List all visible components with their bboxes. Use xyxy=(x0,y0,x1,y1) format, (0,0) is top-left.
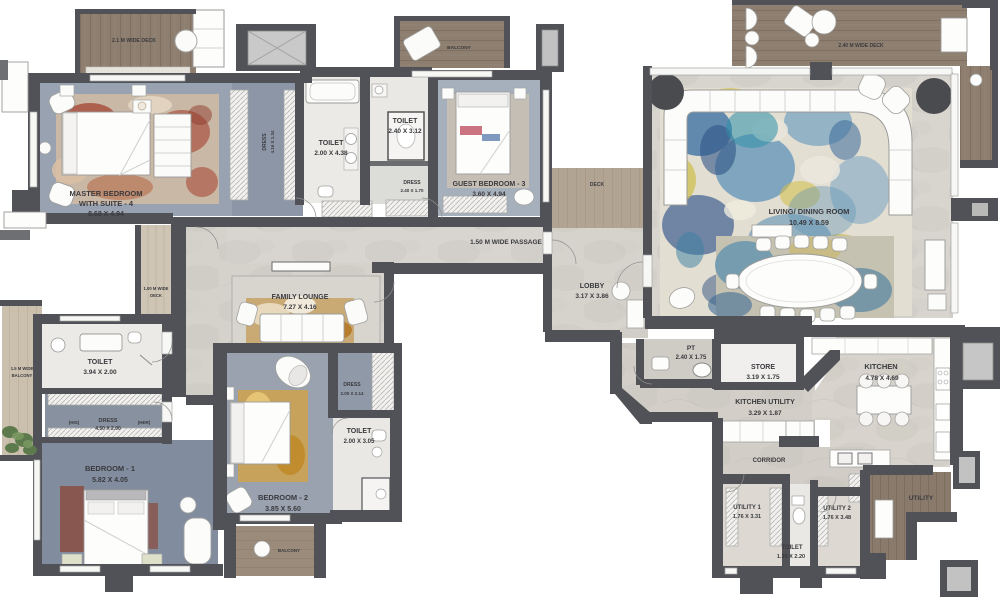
svg-text:3.94 X 2.00: 3.94 X 2.00 xyxy=(83,369,117,376)
svg-text:1.30 X 2.20: 1.30 X 2.20 xyxy=(777,554,805,560)
svg-text:2.40 M WIDE DECK: 2.40 M WIDE DECK xyxy=(838,43,884,49)
svg-text:UTILITY: UTILITY xyxy=(909,495,934,502)
svg-text:TOILET: TOILET xyxy=(393,118,418,125)
svg-text:2.40 X 1.75: 2.40 X 1.75 xyxy=(676,355,707,361)
svg-text:DECK: DECK xyxy=(590,182,605,188)
svg-text:TOILET: TOILET xyxy=(347,428,372,435)
svg-text:10.49 X 8.59: 10.49 X 8.59 xyxy=(789,220,829,227)
svg-text:CORRIDOR: CORRIDOR xyxy=(753,458,786,464)
svg-text:1.5 M WIDE: 1.5 M WIDE xyxy=(11,366,34,371)
svg-text:7.27 X 4.16: 7.27 X 4.16 xyxy=(283,304,317,311)
svg-text:8.68 X 4.94: 8.68 X 4.94 xyxy=(88,211,124,218)
svg-text:3.60 X 4.94: 3.60 X 4.94 xyxy=(472,191,506,198)
svg-text:KITCHEN: KITCHEN xyxy=(864,362,897,371)
svg-text:1.76 X 3.31: 1.76 X 3.31 xyxy=(733,514,761,520)
svg-text:4.50 X 2.00: 4.50 X 2.00 xyxy=(95,426,121,432)
svg-text:2.00 X 2.14: 2.00 X 2.14 xyxy=(340,391,364,396)
svg-text:2.00 X 3.05: 2.00 X 3.05 xyxy=(344,439,375,445)
svg-text:4.16 X 1.34: 4.16 X 1.34 xyxy=(270,130,275,154)
svg-text:BALCONY: BALCONY xyxy=(12,373,33,378)
svg-text:GUEST BEDROOM - 3: GUEST BEDROOM - 3 xyxy=(453,181,526,188)
svg-text:3.17 X 3.86: 3.17 X 3.86 xyxy=(575,293,609,300)
svg-text:LIVING/ DINING ROOM: LIVING/ DINING ROOM xyxy=(769,207,850,216)
svg-text:BALCONY: BALCONY xyxy=(278,548,300,553)
svg-text:1.76 X 3.48: 1.76 X 3.48 xyxy=(823,515,851,521)
svg-text:1.50 M WIDE PASSAGE: 1.50 M WIDE PASSAGE xyxy=(470,239,542,246)
svg-text:MASTER BEDROOM: MASTER BEDROOM xyxy=(70,189,143,198)
svg-text:KITCHEN UTILITY: KITCHEN UTILITY xyxy=(735,399,795,406)
svg-text:5.82 X 4.05: 5.82 X 4.05 xyxy=(92,477,128,484)
svg-text:2.1 M WIDE DECK: 2.1 M WIDE DECK xyxy=(112,38,156,44)
svg-text:2.40 X 1.70: 2.40 X 1.70 xyxy=(400,188,424,193)
svg-text:(HER): (HER) xyxy=(138,420,151,425)
svg-text:DECK: DECK xyxy=(150,293,162,298)
svg-text:STORE: STORE xyxy=(751,364,775,371)
svg-text:DRESS: DRESS xyxy=(262,133,268,151)
svg-text:LOBBY: LOBBY xyxy=(580,283,605,290)
svg-text:DRESS: DRESS xyxy=(343,382,361,388)
svg-text:TOILET: TOILET xyxy=(781,545,803,551)
svg-text:TOILET: TOILET xyxy=(319,140,344,147)
svg-text:3.85 X 5.60: 3.85 X 5.60 xyxy=(265,506,301,513)
svg-text:UTILITY 1: UTILITY 1 xyxy=(733,505,761,511)
svg-text:DRESS: DRESS xyxy=(99,418,118,424)
svg-text:UTILITY 2: UTILITY 2 xyxy=(823,506,851,512)
svg-text:PT: PT xyxy=(687,345,695,352)
svg-text:1.00 M WIDE: 1.00 M WIDE xyxy=(144,286,169,291)
svg-text:3.19 X 1.75: 3.19 X 1.75 xyxy=(746,374,780,381)
svg-text:(HIS): (HIS) xyxy=(69,420,80,425)
svg-text:4.78 X 4.69: 4.78 X 4.69 xyxy=(865,375,899,382)
svg-text:BEDROOM - 2: BEDROOM - 2 xyxy=(258,493,308,502)
svg-text:2.00 X 4.38: 2.00 X 4.38 xyxy=(314,150,348,157)
svg-text:BALCONY: BALCONY xyxy=(447,45,472,51)
svg-text:FAMILY LOUNGE: FAMILY LOUNGE xyxy=(272,294,329,301)
svg-text:DRESS: DRESS xyxy=(403,180,421,186)
svg-text:BEDROOM - 1: BEDROOM - 1 xyxy=(85,464,135,473)
svg-text:2.40 X 3.12: 2.40 X 3.12 xyxy=(388,128,422,135)
svg-text:WITH SUITE - 4: WITH SUITE - 4 xyxy=(79,199,134,208)
svg-text:TOILET: TOILET xyxy=(88,359,113,366)
svg-text:3.29 X 1.87: 3.29 X 1.87 xyxy=(748,410,782,417)
